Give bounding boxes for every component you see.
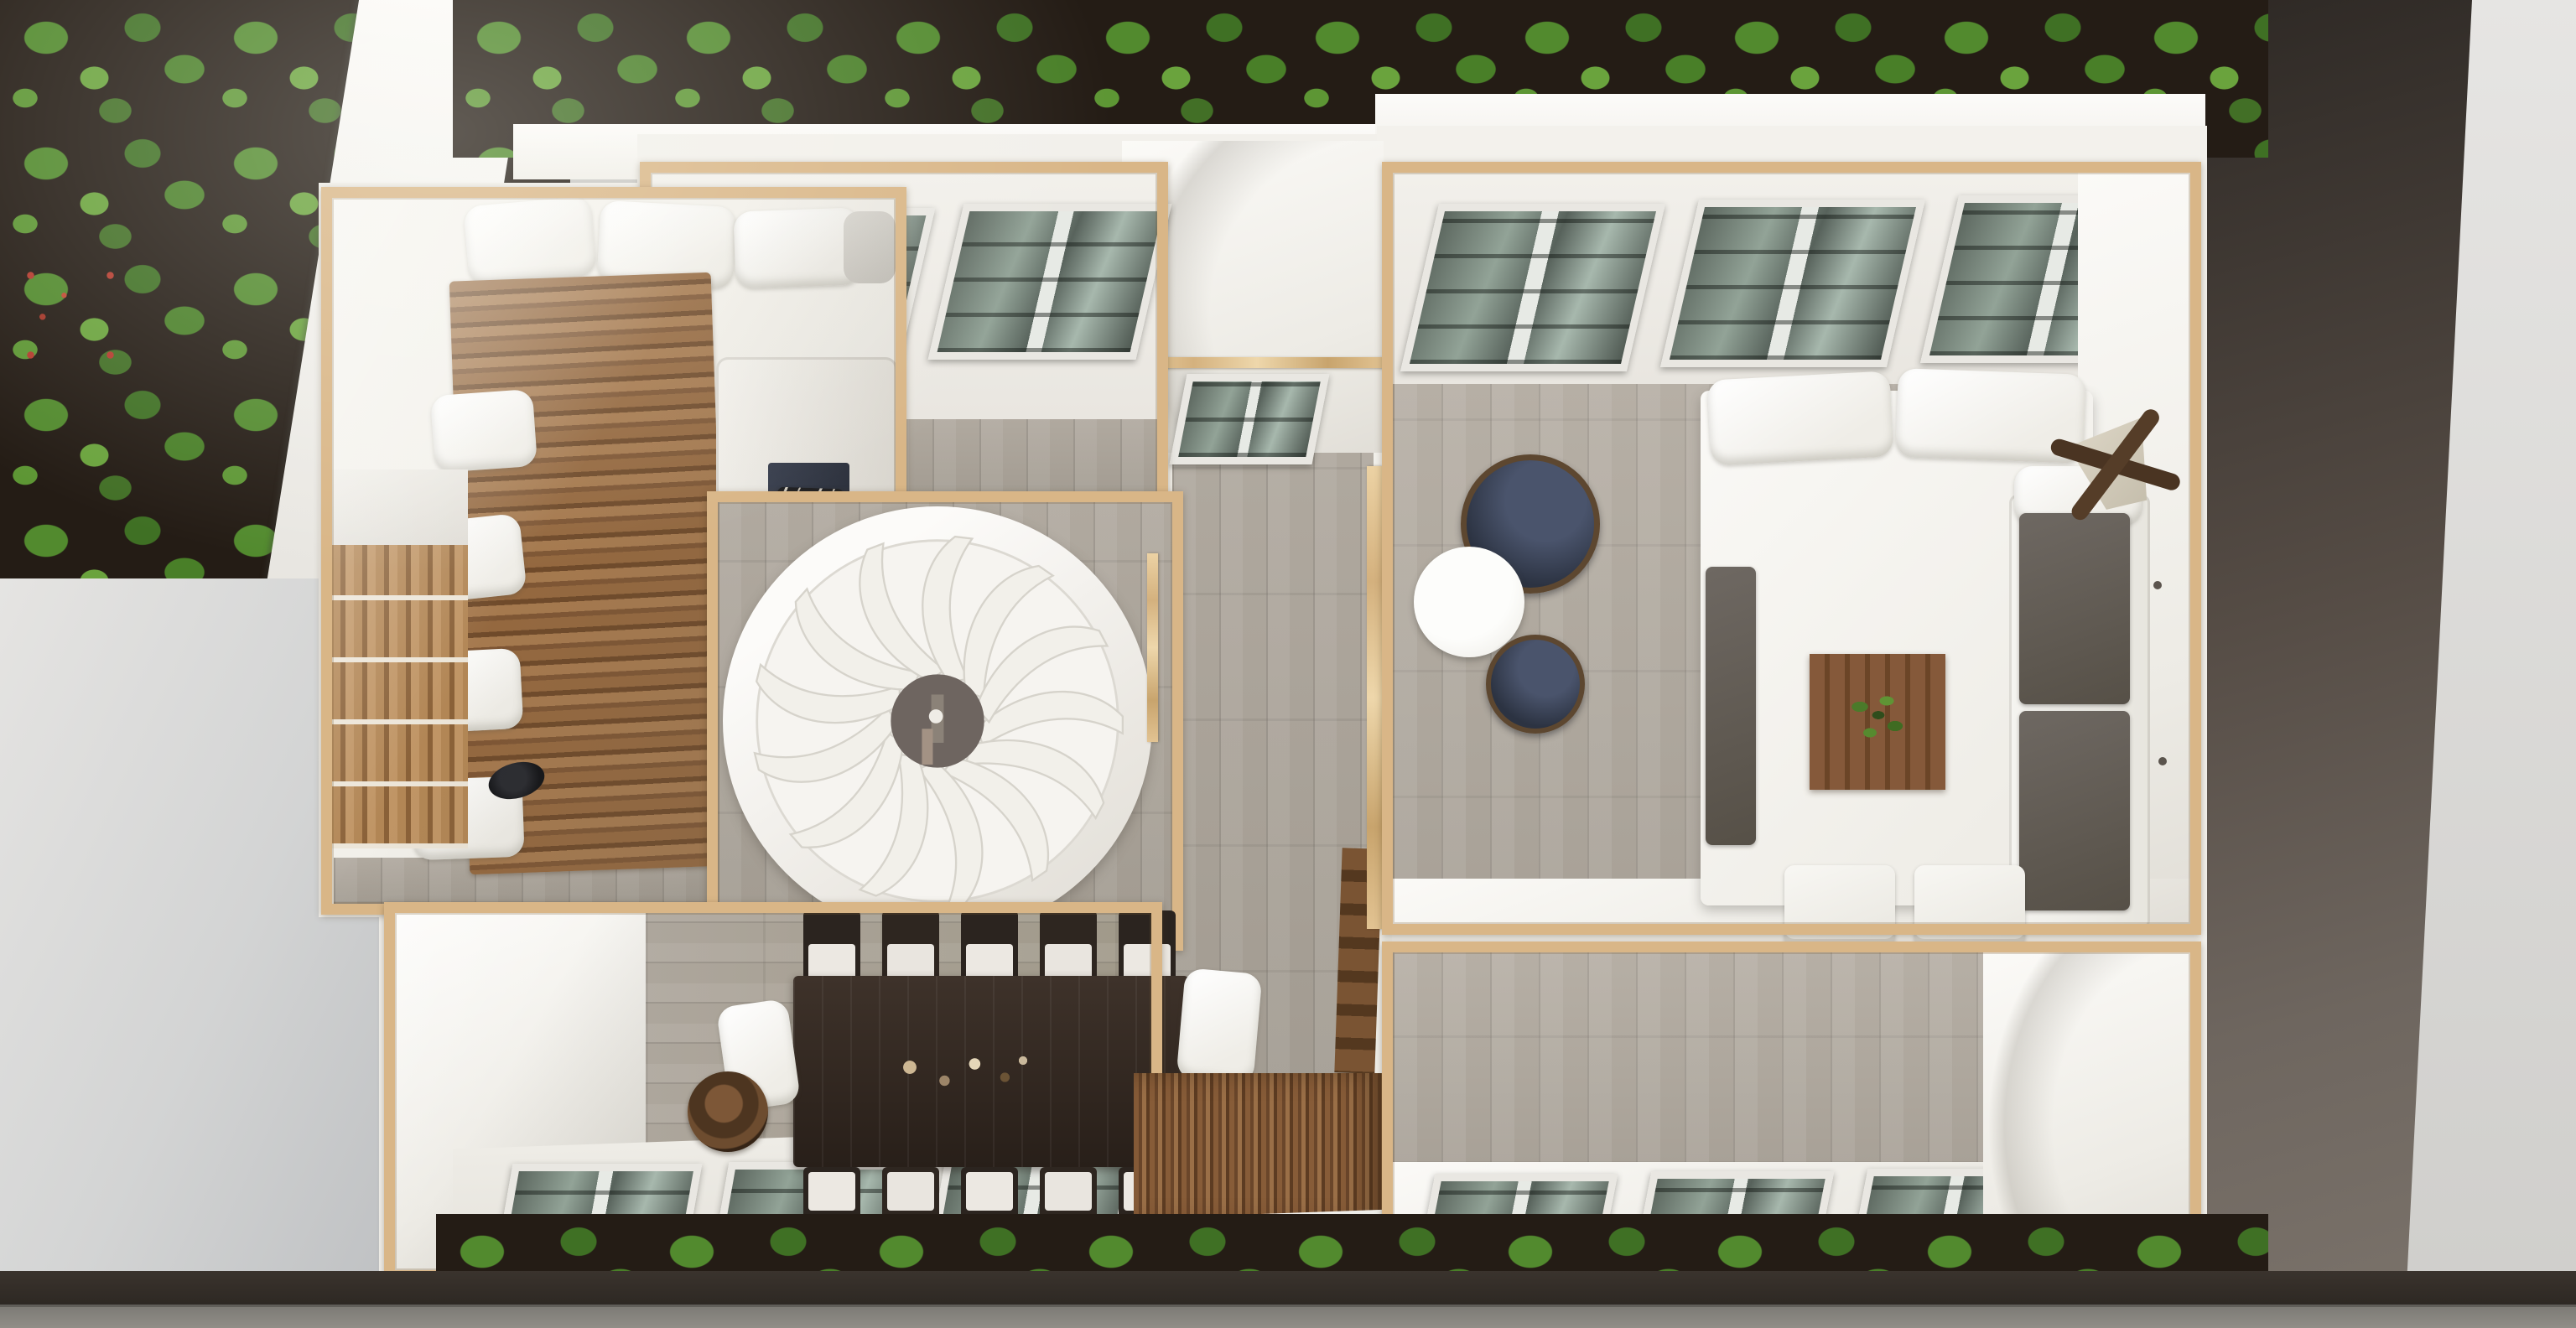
vestibule-skylight: [1170, 374, 1330, 464]
great-room-frame: [1382, 162, 2201, 935]
end-pillow-east: [1176, 967, 1262, 1085]
stair-room-frame: [707, 491, 1183, 951]
aerial-house-photo: [0, 0, 2576, 1328]
skylight-glass: [1178, 381, 1320, 457]
spiral-stair-room: [707, 491, 1183, 951]
pavement-south: [0, 1305, 2576, 1328]
hall-wood-divider: [1367, 466, 1382, 929]
vestibule-wall-trim: [1130, 357, 1384, 368]
great-room-east: [1382, 162, 2201, 935]
deck-south: [1134, 1073, 1384, 1226]
red-flowers: [7, 252, 116, 361]
